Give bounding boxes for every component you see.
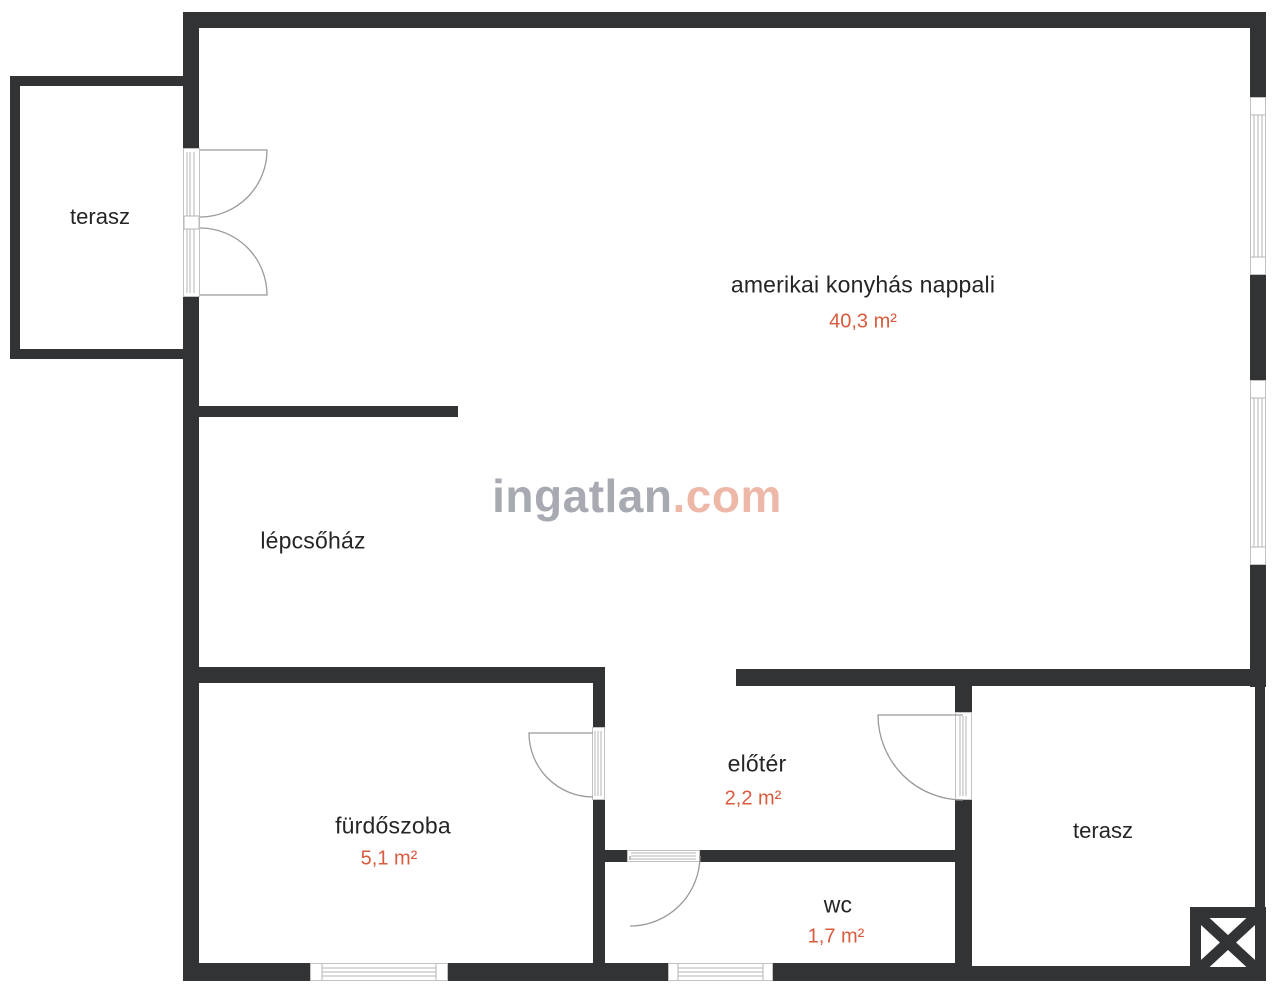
bathroom-door-swing [529, 733, 593, 797]
terrace-tl-wall-left [10, 76, 20, 359]
room-area-bathroom: 5,1 m² [361, 848, 418, 871]
window-bottom-wc [668, 963, 773, 981]
wall-left-upper [183, 12, 199, 148]
window-right-1 [1250, 97, 1266, 275]
wall-staircase-stub [199, 406, 458, 417]
window-right-2 [1250, 380, 1266, 565]
room-label-staircase: lépcsőház [260, 528, 365, 555]
hall-terrace-door-leaf [955, 712, 972, 800]
floor-plan: terasz amerikai konyhás nappali 40,3 m² … [0, 0, 1280, 996]
wall-right-seg3 [1250, 565, 1266, 687]
wall-hall-terrace-upper [955, 686, 972, 712]
wc-door-swing [630, 856, 700, 926]
bathroom-door-leaf [592, 727, 605, 800]
window-bottom-bathroom [310, 963, 448, 981]
room-label-terrace-bottom: terasz [1073, 818, 1133, 844]
wall-livingroom-bottom [736, 669, 1250, 686]
watermark-suffix: .com [672, 470, 781, 522]
wall-bathroom-top [199, 667, 605, 683]
wall-top [183, 12, 1266, 28]
room-label-livingroom: amerikai konyhás nappali [731, 272, 995, 299]
wall-bathroom-wc-lower [593, 800, 605, 963]
room-label-bathroom: fürdőszoba [335, 813, 451, 840]
wall-wc-top-left [605, 850, 627, 862]
watermark-brand: ingatlan [492, 470, 672, 522]
hall-terrace-door-swing [878, 715, 963, 800]
french-door-panel [183, 148, 200, 297]
wc-door-leaf [627, 850, 700, 862]
wall-wc-top-right [700, 850, 955, 862]
room-label-terrace-top: terasz [70, 204, 130, 230]
room-label-wc: wc [824, 892, 853, 919]
wall-bottom-main [183, 963, 972, 981]
room-label-hall: előtér [728, 751, 787, 778]
shaft-box [1190, 907, 1266, 978]
terrace-tl-wall-top [10, 76, 183, 86]
room-area-wc: 1,7 m² [808, 926, 865, 949]
wall-left-lower [183, 297, 199, 981]
wall-hall-terrace-lower [955, 800, 972, 963]
wall-right-seg2 [1250, 275, 1266, 380]
room-area-livingroom: 40,3 m² [829, 311, 897, 334]
watermark: ingatlan.com [492, 469, 782, 523]
room-area-hall: 2,2 m² [725, 788, 782, 811]
terrace-tl-wall-bottom [10, 349, 183, 359]
french-door-swings [200, 150, 267, 295]
wall-bathroom-hall-upper [593, 667, 605, 727]
wall-right-seg1 [1250, 12, 1266, 97]
